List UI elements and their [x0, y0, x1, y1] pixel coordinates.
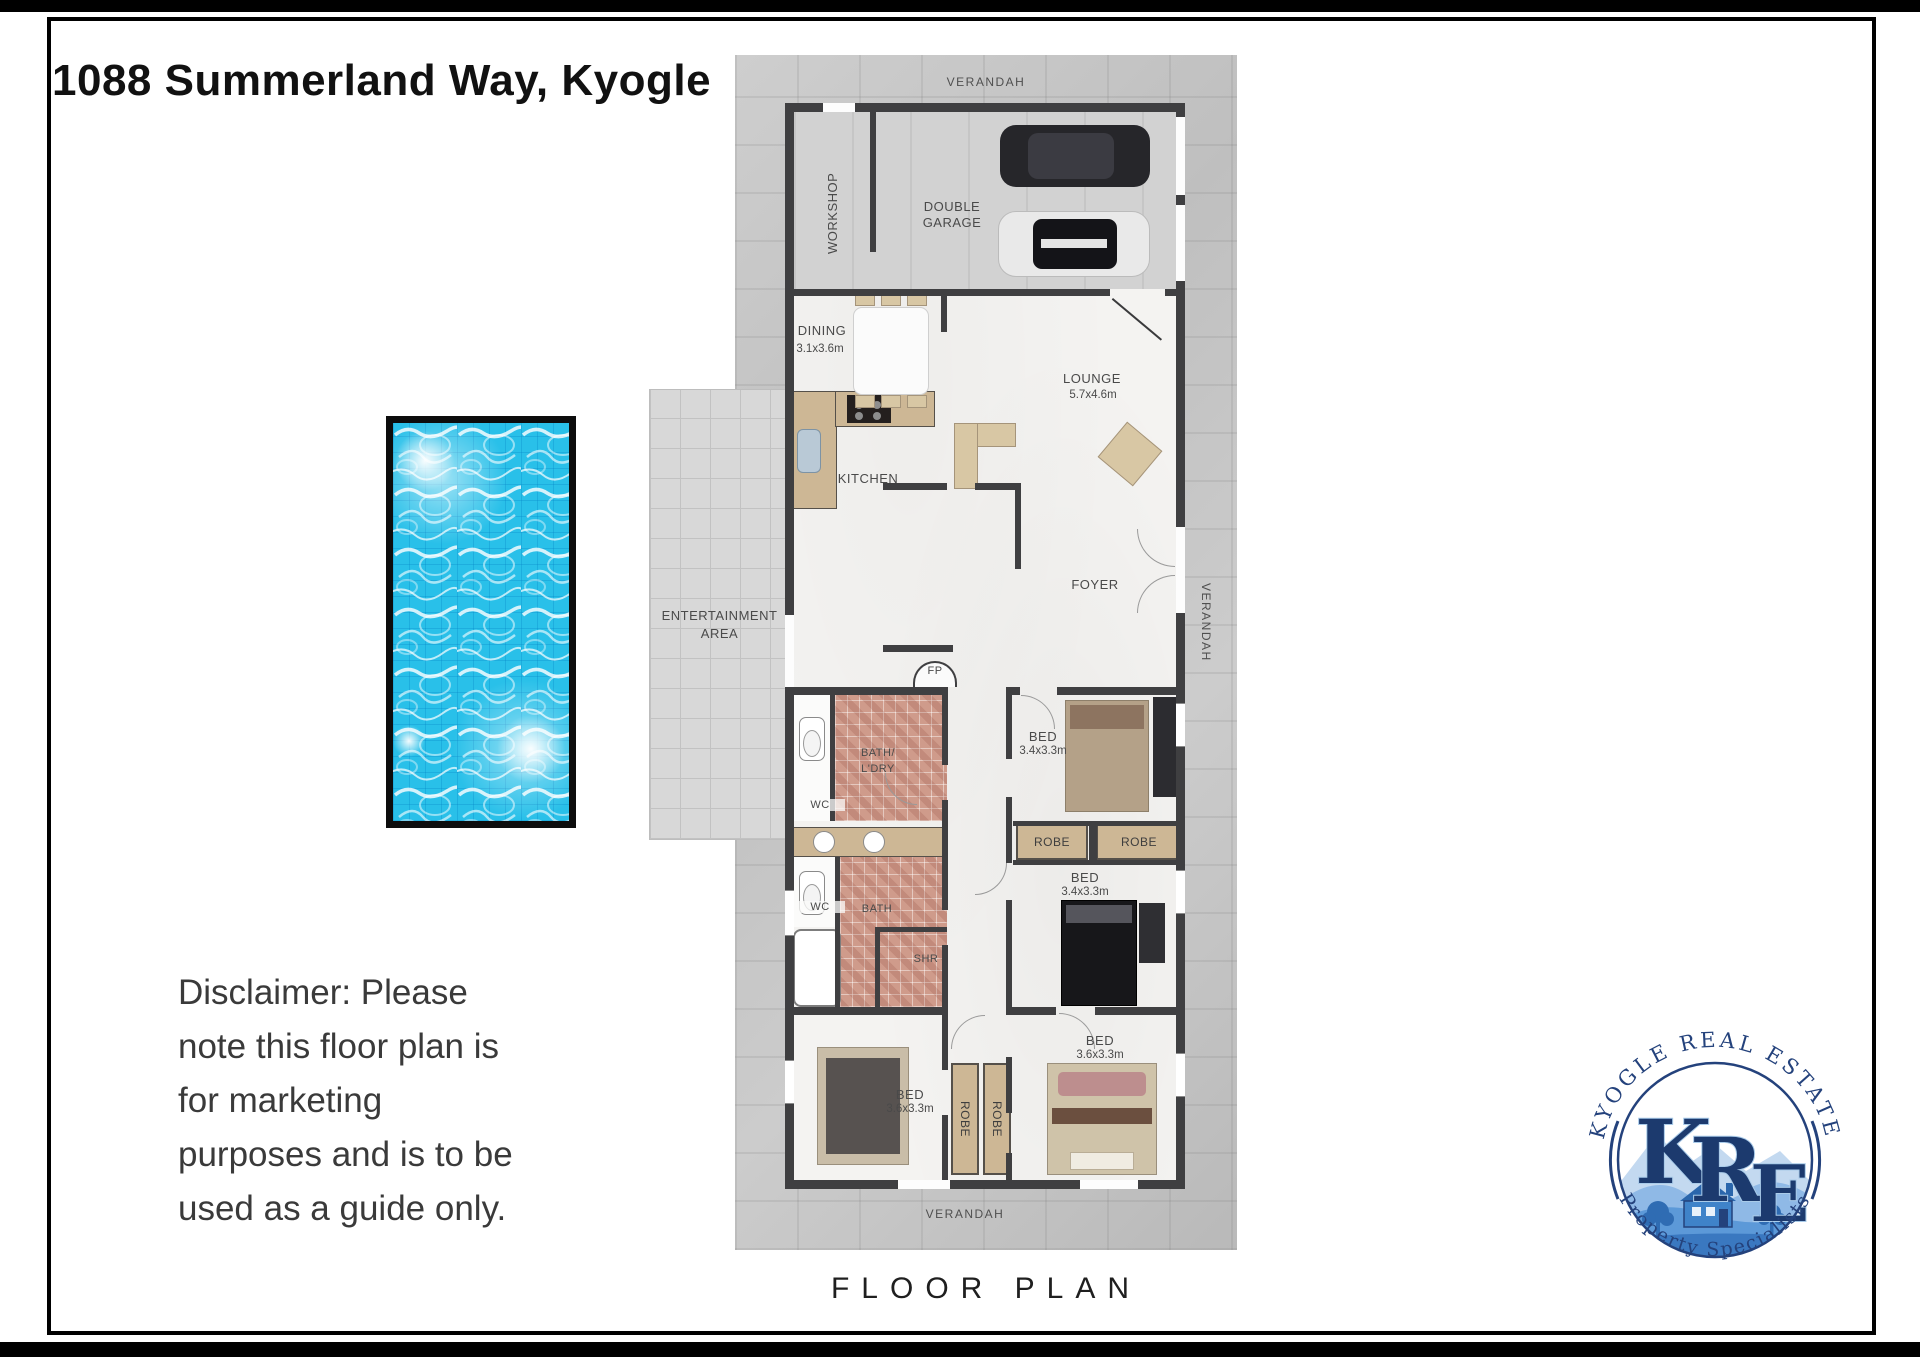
wall-mid	[1006, 1007, 1056, 1015]
bed4-dims: 3.6x3.3m	[1060, 1049, 1140, 1061]
kitchen-label: KITCHEN	[828, 471, 908, 486]
bathtub	[793, 929, 841, 1007]
foyer-label: FOYER	[1055, 577, 1135, 592]
bed1-label: BED	[1003, 729, 1083, 744]
basin-2	[863, 831, 885, 853]
wall-robe	[1013, 860, 1185, 865]
marketing-flyer: { "header": { "title": "1088 Summerland …	[0, 0, 1920, 1357]
bed4-label: BED	[1060, 1033, 1140, 1048]
bath-tiles	[840, 857, 947, 1007]
disclaimer-line: for marketing	[178, 1074, 513, 1128]
wall-dining	[941, 296, 947, 332]
wall-hall	[1006, 900, 1012, 1010]
lounge-dims: 5.7x4.6m	[1053, 389, 1133, 401]
wall-hall	[1006, 1153, 1012, 1180]
window-bath	[785, 890, 794, 936]
wall-bed-block	[1057, 687, 1185, 695]
dining-chair	[907, 395, 927, 408]
wall-fireplace	[883, 645, 953, 652]
verandah-top-label: VERANDAH	[735, 75, 1237, 89]
robe-bed3: ROBE	[951, 1063, 979, 1175]
bed1-dims: 3.4x3.3m	[1003, 745, 1083, 757]
bed2-dims: 3.4x3.3m	[1045, 886, 1125, 898]
wall-bed-block	[793, 687, 948, 695]
floor-plan: ENTERTAINMENT AREA VERANDAH VERANDAH VER…	[735, 55, 1237, 1250]
car-suv	[998, 211, 1150, 277]
wall-robe	[1013, 821, 1185, 826]
foyer-entry	[1176, 527, 1185, 613]
bath-ldry-label-2: L'DRY	[848, 763, 908, 775]
bed3-dims: 3.6x3.3m	[870, 1103, 950, 1115]
entertainment-label-1: ENTERTAINMENT	[650, 608, 789, 623]
wc1-label: WC	[795, 799, 845, 811]
window-bed3	[785, 1060, 794, 1104]
bath-ldry-label-1: BATH/	[848, 747, 908, 759]
disclaimer-text: Disclaimer: Please note this floor plan …	[178, 966, 513, 1236]
window-bed4	[1176, 1053, 1185, 1097]
disclaimer-line: Disclaimer: Please	[178, 966, 513, 1020]
entertainment-label-2: AREA	[650, 626, 789, 641]
wall-hall	[942, 695, 948, 765]
robe-bed2: ROBE	[1096, 824, 1182, 860]
wall-hall	[942, 800, 948, 910]
wall-bed-block	[1006, 687, 1020, 695]
entertainment-door	[785, 615, 794, 687]
dining-label: DINING	[782, 323, 862, 338]
wc2-label: WC	[795, 901, 845, 913]
wall-mid	[793, 1007, 948, 1015]
page-title: 1088 Summerland Way, Kyogle	[52, 56, 711, 106]
wall-mid	[1095, 1007, 1185, 1015]
kitchen-sink	[797, 429, 821, 473]
bed2-label: BED	[1045, 870, 1125, 885]
pool-caustics	[393, 423, 569, 821]
entertainment-area: ENTERTAINMENT AREA	[649, 389, 790, 840]
bed3-label: BED	[870, 1087, 950, 1102]
wall-robe	[1089, 821, 1097, 863]
verandah-right-label: VERANDAH	[1199, 583, 1213, 662]
verandah-bottom-label: VERANDAH	[735, 1207, 1195, 1221]
wall-garage	[785, 289, 1110, 296]
garage-door-2	[1176, 205, 1185, 281]
workshop-label: WORKSHOP	[825, 163, 840, 263]
wall-foyer	[1015, 483, 1021, 569]
dining-chair	[881, 395, 901, 408]
wall-shower	[875, 927, 947, 932]
lounge-label: LOUNGE	[1052, 371, 1132, 386]
pool-photo	[386, 416, 576, 828]
workshop-door	[823, 103, 855, 112]
wall-hall	[942, 1115, 948, 1180]
window-bed2	[1176, 870, 1185, 914]
shower-label: SHR	[896, 953, 956, 965]
basin-1	[813, 831, 835, 853]
sofa-arm	[954, 423, 978, 489]
window-bed1	[1176, 703, 1185, 747]
robe-bed1: ROBE	[1016, 824, 1088, 860]
bottom-border-bar	[0, 1342, 1920, 1357]
car-sedan	[1000, 125, 1150, 187]
floor-plan-caption: FLOOR PLAN	[735, 1272, 1237, 1306]
verandah-door-1	[898, 1180, 950, 1189]
fireplace-label: FP	[913, 665, 957, 677]
garage-label-1: DOUBLE	[902, 199, 1002, 214]
wardrobe-bed1	[1153, 697, 1177, 797]
cabinet-bed2	[1139, 903, 1165, 963]
bath-label: BATH	[847, 903, 907, 915]
disclaimer-line: note this floor plan is	[178, 1020, 513, 1074]
wall-workshop-divider	[870, 112, 876, 252]
wall-shower	[875, 927, 880, 1007]
garage-door-1	[1176, 117, 1185, 195]
dining-chair	[855, 395, 875, 408]
dining-table	[853, 307, 929, 395]
agency-logo: K R E KYOGLE REAL ESTATE Property Specia…	[1578, 1018, 1852, 1302]
wall-garage	[1165, 289, 1185, 296]
top-border-bar	[0, 0, 1920, 12]
verandah-door-2	[1080, 1180, 1138, 1189]
kre-logo-graphic: K R E KYOGLE REAL ESTATE Property Specia…	[1578, 1018, 1852, 1302]
wall-hall	[1006, 1057, 1012, 1113]
dining-dims: 3.1x3.6m	[780, 343, 860, 355]
wall-wc2	[835, 857, 840, 1007]
disclaimer-line: used as a guide only.	[178, 1182, 513, 1236]
bed-4	[1047, 1063, 1157, 1175]
toilet-1	[799, 717, 825, 761]
bed-2	[1061, 900, 1137, 1006]
wall-hall	[1006, 797, 1012, 863]
disclaimer-line: purposes and is to be	[178, 1128, 513, 1182]
garage-label-2: GARAGE	[902, 215, 1002, 230]
